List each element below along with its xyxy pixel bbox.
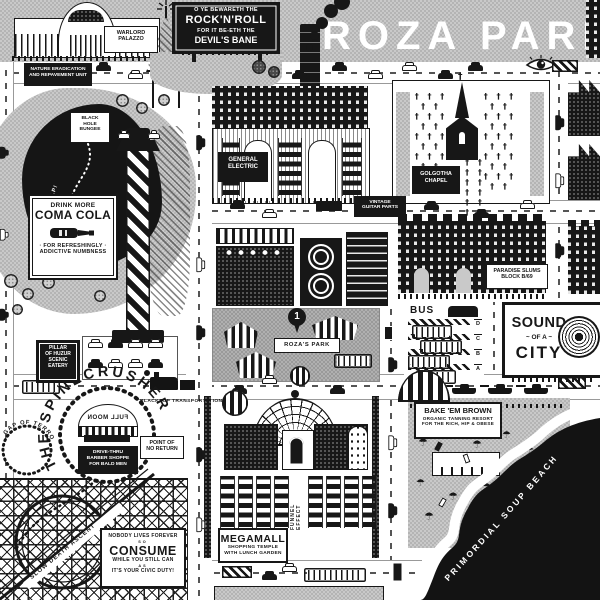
truck-icon (552, 60, 578, 72)
park-pin: 1 (288, 308, 306, 334)
map-canvas: ROZA PARKS WARLORD PALAZZO O YE BEWARETH… (0, 0, 600, 600)
church-spire (455, 82, 469, 118)
car-icon (520, 203, 535, 209)
smoke-puff (306, 44, 313, 51)
car-icon (330, 388, 345, 394)
ge-car-stack (342, 138, 362, 196)
car-icon (0, 229, 6, 241)
car-icon (148, 342, 163, 348)
warlord-line1: WARLORD (117, 30, 145, 36)
car-icon (332, 65, 347, 71)
golgotha-gray-strip (530, 92, 544, 196)
palazzo-fence (12, 56, 160, 61)
car-icon (148, 133, 160, 139)
barber-line2: BARBER SHOPPE (87, 456, 130, 461)
car-icon (118, 133, 130, 139)
amp-head-building (346, 232, 388, 306)
pillar-label: PILLAR OF HUZUR SCENIC EATERY (36, 340, 80, 383)
rock-line1: O YE BEWARETH THE (173, 7, 279, 14)
car-icon (556, 243, 562, 258)
bus-icon (412, 325, 452, 339)
tree-icon (4, 274, 18, 288)
factory-building (568, 80, 600, 136)
car-icon (368, 73, 383, 79)
cola-bottle-icon (49, 225, 97, 241)
coma-line4: ADDICTIVE NUMBNESS (30, 249, 116, 255)
megamall-line1: MEGAMALL (220, 533, 286, 545)
smoke-puff (316, 17, 328, 29)
warlord-line2: PALAZZO (118, 36, 144, 42)
barber-line1: DRIVE-THRU (93, 450, 123, 455)
barber-shoppe-label: DRIVE-THRU BARBER SHOPPE FOR BALD MEN (78, 446, 138, 474)
car-icon (96, 65, 111, 71)
rock-line2: ROCK'N'ROLL (173, 14, 279, 28)
parking-column (256, 476, 271, 528)
paradise-slums-building-2 (568, 220, 600, 300)
parking-column (274, 476, 289, 528)
paradise-line2: BLOCK B/69 (501, 274, 533, 280)
warlord-palazzo-label: WARLORD PALAZZO (104, 26, 158, 53)
bus-icon (420, 340, 462, 354)
pillar-top-flare (116, 140, 160, 151)
ge-arch (308, 140, 336, 201)
platform-letter-c: C (474, 334, 482, 342)
rock-line3: FOR IT BE-ETH THE (173, 28, 279, 35)
golgotha-church: † (446, 80, 478, 160)
point-of-no-return-sign: POINT OF NO RETURN (140, 436, 184, 459)
car-icon (402, 65, 417, 71)
vintage-line2: GUITAR PARTS (362, 205, 398, 210)
rock-line4: DEVIL'S BANE (173, 35, 279, 46)
pin-number: 1 (294, 311, 300, 322)
bus-stop-marker (384, 326, 393, 340)
car-icon (556, 173, 562, 188)
platform-letter-a: A (474, 364, 482, 372)
balloon-dome-icon (290, 366, 310, 386)
ge-line2: ELECTRIC (228, 164, 258, 170)
blacktop-transportation-label: BLACKTOP TRANSPORTATION (140, 399, 222, 404)
consume-line3: CONSUME (102, 544, 184, 558)
general-electric-label: GENERAL ELECTRIC (218, 152, 268, 182)
smoke-puff (310, 31, 319, 40)
car-icon (556, 115, 562, 130)
golgotha-gray-strip (396, 92, 410, 196)
bake-em-brown-label: BAKE 'EM BROWN ORGANIC TANNING RESORT FO… (414, 402, 502, 439)
map-title: ROZA PARKS (322, 14, 598, 60)
funnel-effect-label: FUNNEL EFFECT (290, 478, 302, 530)
tree-icon (94, 290, 106, 302)
bus-terminal-roof (448, 306, 478, 317)
church-cross-finial: † (458, 72, 463, 82)
slums-door-arch (414, 268, 429, 293)
golgotha-line2: CHAPEL (425, 178, 448, 184)
ge-car-stack (278, 138, 302, 196)
tree-icon (116, 94, 129, 107)
vintage-line1: VINTAGE (369, 200, 390, 205)
rozas-park-label: ROZA'S PARK (274, 338, 340, 353)
car-icon (282, 566, 297, 572)
saloon-base (84, 435, 130, 442)
car-icon (0, 309, 6, 321)
dome-finial (291, 390, 299, 398)
consume-line1: NOBODY LIVES FOREVER (102, 534, 184, 540)
black-hole-line1: BLACK (81, 116, 98, 121)
bake-line1: BAKE 'EM BROWN (416, 407, 500, 416)
bus-station-title: BUS (410, 305, 434, 316)
coma-cola-billboard: DRINK MORE COMA COLA · FOR REFRESHINGLY … (28, 194, 118, 280)
speaker-building (300, 238, 342, 306)
bake-line3: FOR THE RICH, HIP & OBESE (416, 421, 500, 426)
speaker-cone (308, 273, 334, 299)
palazzo-attic (68, 10, 104, 22)
rozas-park-name: ROZA'S PARK (284, 342, 330, 348)
nature-eradication-label: NATURE ERADICATION AND REPAVEMENT UNIT (24, 63, 92, 86)
parking-column (238, 476, 253, 528)
church-window (459, 132, 465, 144)
bus-icon (408, 355, 450, 369)
tree-icon (12, 304, 23, 315)
slums-facade (568, 226, 600, 294)
pin-tail (294, 324, 300, 333)
consume-line6: IT'S YOUR CIVIC DUTY! (102, 569, 184, 575)
keyboard-building (216, 228, 294, 244)
corner-tower-building (586, 0, 600, 58)
vinyl-record-icon (558, 316, 600, 358)
car-icon (438, 73, 453, 79)
megamall-line3: WITH LUNCH GARDEN (220, 551, 286, 557)
megamall-wing (224, 424, 278, 470)
tree-icon (252, 60, 266, 74)
bus-icon (334, 354, 372, 368)
gate-arch (289, 437, 304, 465)
pin-head: 1 (288, 308, 306, 326)
car-icon (88, 342, 103, 348)
megamall-cylinder-tower (348, 426, 368, 470)
coma-line2: COMA COLA (30, 209, 116, 223)
parking-column (308, 476, 323, 528)
slums-fence (398, 294, 546, 299)
car-icon (148, 362, 163, 368)
car-icon (474, 212, 489, 218)
car-icon (197, 135, 203, 150)
car-icon (389, 357, 395, 372)
megamall-gate-tower (282, 430, 314, 470)
parking-column (362, 476, 377, 528)
svg-text:SLOW DEATH ASCENT: SLOW DEATH ASCENT (29, 523, 97, 581)
car-icon (128, 342, 143, 348)
sound-line3: CITY (511, 343, 567, 363)
bottom-building-slab (214, 586, 384, 600)
vintage-guitar-parts-label: VINTAGE GUITAR PARTS (354, 196, 406, 217)
black-hole-bungee-label: BLACK HOLE BUNGEE (70, 112, 110, 143)
car-icon (128, 362, 143, 368)
tree-icon (158, 94, 170, 106)
amp-building (216, 246, 294, 306)
car-icon (468, 65, 483, 71)
car-icon (262, 212, 277, 218)
tree-icon (22, 288, 34, 300)
slums-door-arch (456, 268, 471, 293)
black-hole-line3: BUNGEE (80, 127, 101, 132)
sound-of-a-city-billboard: SOUND ~ OF A ~ CITY (502, 302, 600, 378)
car-icon (197, 257, 203, 272)
platform-letter-d: D (474, 319, 482, 327)
golgotha-line1: GOLGOTHA (420, 171, 452, 177)
golgotha-label: GOLGOTHA CHAPEL (412, 166, 460, 194)
car-icon (262, 378, 277, 384)
balloon-dome-icon (222, 390, 248, 416)
ge-fence (212, 198, 368, 203)
car-icon (424, 204, 439, 210)
tree-icon (268, 66, 280, 78)
parking-column (220, 476, 235, 528)
pillar-of-huzur (126, 148, 150, 334)
megamall-hedge (204, 396, 211, 558)
speaker-cone (308, 244, 334, 270)
rock-billboard: O YE BEWARETH THE ROCK'N'ROLL FOR IT BE-… (172, 2, 280, 54)
ponr-line2: NO RETURN (146, 446, 178, 452)
megamall-parking: FUNNEL EFFECT (214, 474, 372, 530)
nature-line1: NATURE ERADICATION (31, 67, 86, 72)
slow-death-ascent-label: SLOW DEATH ASCENT (29, 523, 97, 581)
car-icon (108, 342, 123, 348)
parking-column (326, 476, 341, 528)
barber-line3: FOR BALD MEN (89, 462, 127, 467)
car-icon (292, 73, 307, 79)
paradise-slums-label: PARADISE SLUMS BLOCK B/69 (486, 264, 548, 289)
ge-line1: GENERAL (228, 157, 257, 163)
car-icon (230, 203, 245, 209)
car-icon (0, 147, 6, 159)
megamall-line2: SHOPPING TEMPLE (220, 545, 286, 551)
parking-column (344, 476, 359, 528)
amp-district (212, 224, 390, 308)
full-moon-saloon: FULL MOON (78, 404, 136, 444)
tree-icon (136, 102, 148, 114)
platform-letter-b: B (474, 349, 482, 357)
truck-icon (222, 566, 252, 578)
saloon-arch-sign: FULL MOON (78, 404, 138, 428)
car-icon (262, 574, 277, 580)
megamall-label: MEGAMALL SHOPPING TEMPLE WITH LUNCH GARD… (218, 528, 288, 563)
factory-building (568, 144, 600, 200)
car-icon (128, 73, 143, 79)
full-moon-sign: FULL MOON (87, 414, 128, 421)
tram-icon (304, 568, 366, 582)
amp-knobs (223, 250, 283, 255)
black-hole-line2: HOLE (83, 122, 97, 127)
nature-line2: AND REPAVEMENT UNIT (29, 73, 87, 78)
consume-billboard: NOBODY LIVES FOREVER SO CONSUME WHILE YO… (100, 528, 186, 588)
car-icon (197, 325, 203, 340)
ge-power-towers (212, 86, 368, 128)
pillar-line4: EATERY (48, 363, 68, 369)
